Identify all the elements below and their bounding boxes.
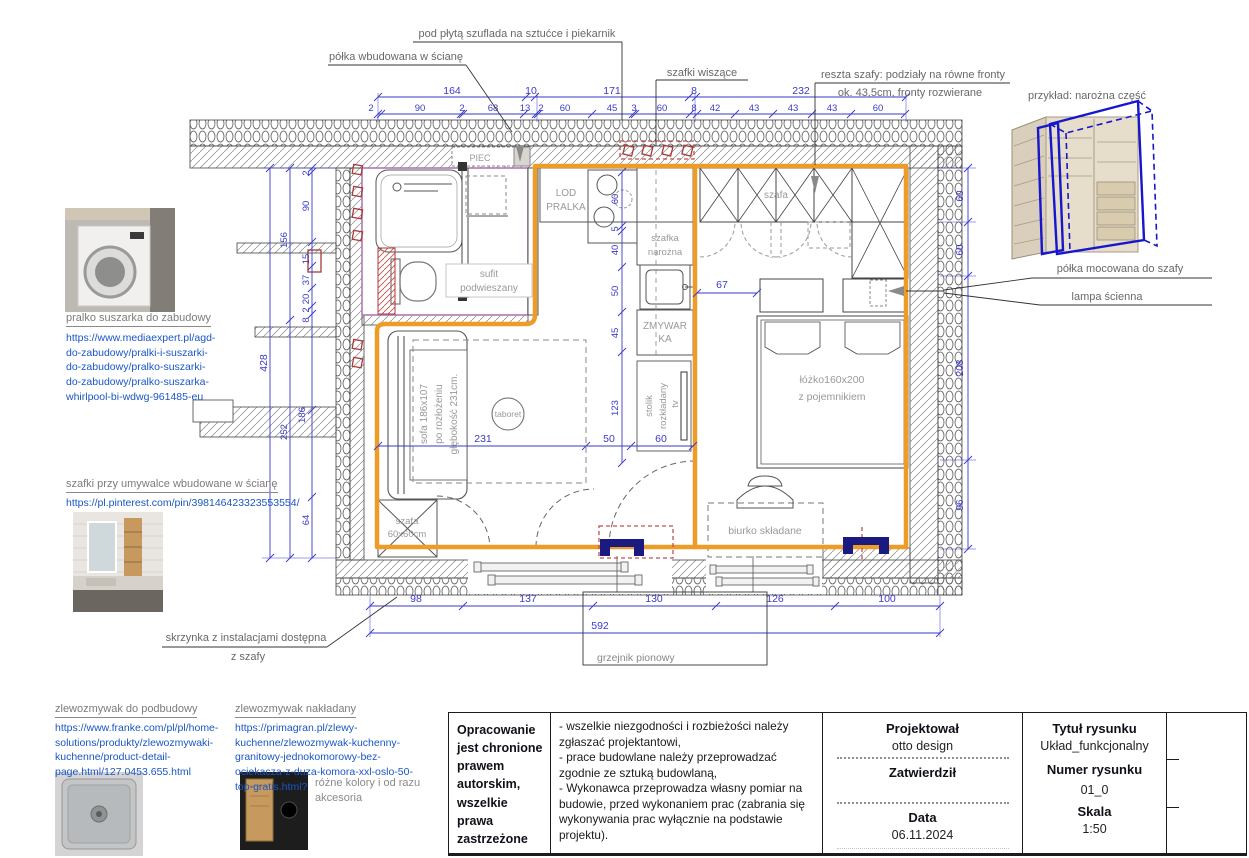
dishwasher-label: KA xyxy=(658,334,672,345)
desk-chair xyxy=(737,476,793,508)
svg-text:szafa: szafa xyxy=(396,516,419,527)
callout-wardrobe-fronts: ok. 43,5cm, fronty rozwierane xyxy=(838,87,982,99)
designed-label: Projektował xyxy=(823,721,1022,736)
door-arcs xyxy=(437,461,695,549)
svg-text:8: 8 xyxy=(691,103,696,114)
svg-text:186: 186 xyxy=(297,407,308,423)
note-line: - wszelkie niezgodności i rozbieżości na… xyxy=(559,719,814,750)
washer-photo xyxy=(65,208,175,312)
desk-label: biurko składane xyxy=(728,525,802,537)
wardrobe-label: szafa xyxy=(764,190,788,201)
ref-washer: pralko suszarka do zabudowy https://www.… xyxy=(66,308,218,404)
fridge-washer-label: LOD xyxy=(556,188,577,199)
tv-label: tv xyxy=(670,400,681,408)
svg-text:90: 90 xyxy=(301,201,312,212)
lamp-arrow-icon xyxy=(888,286,904,296)
ref-sink-mirror: szafki przy umywalce wbudowane w ścianę … xyxy=(66,474,336,511)
svg-text:13: 13 xyxy=(520,103,531,114)
bedroom: szafa łóżko160x200 z pojemnikiem biurko … xyxy=(700,168,908,557)
svg-text:592: 592 xyxy=(591,620,609,632)
svg-text:stolik: stolik xyxy=(644,395,655,417)
svg-text:60: 60 xyxy=(657,103,668,114)
wall-lamp-symbol xyxy=(870,280,886,306)
piec-label: PIEC xyxy=(469,153,491,163)
callout-hanging-cabinets: szafki wiszące xyxy=(667,67,737,79)
svg-text:64: 64 xyxy=(301,515,312,526)
svg-text:42: 42 xyxy=(710,103,721,114)
living-area: sofa 186x107 po rozłożeniu głębokość 231… xyxy=(378,331,695,557)
svg-text:90: 90 xyxy=(415,103,426,114)
approved-label: Zatwierdził xyxy=(823,765,1022,780)
dishwasher-label: ZMYWAR xyxy=(643,321,687,332)
bed: łóżko160x200 z pojemnikiem xyxy=(757,279,908,468)
svg-text:20: 20 xyxy=(301,294,312,305)
svg-text:60: 60 xyxy=(873,103,884,114)
ref-sink-mirror-title: szafki przy umywalce wbudowane w ścianę xyxy=(66,478,278,493)
svg-text:156: 156 xyxy=(279,232,290,248)
svg-text:60: 60 xyxy=(610,194,621,205)
svg-text:45: 45 xyxy=(607,103,618,114)
svg-text:15: 15 xyxy=(301,254,312,265)
svg-text:60x60cm: 60x60cm xyxy=(388,529,427,540)
ref-sink-under: zlewozmywak do podbudowy https://www.fra… xyxy=(55,699,225,780)
ref-sink-under-title: zlewozmywak do podbudowy xyxy=(55,703,197,718)
svg-text:98: 98 xyxy=(410,593,422,605)
svg-text:taboret: taboret xyxy=(495,409,522,419)
svg-text:252: 252 xyxy=(279,424,290,440)
svg-text:40: 40 xyxy=(610,245,621,256)
title-block-empty xyxy=(1167,713,1246,853)
ref-washer-title: pralko suszarka do zabudowy xyxy=(66,312,211,327)
callout-shelf-wall: półka wbudowana w ścianę xyxy=(329,51,463,63)
radiator-callout: grzejnik pionowy xyxy=(583,592,767,665)
callout-utility-box: z szafy xyxy=(231,651,266,663)
callout-utility-box: skrzynka z instalacjami dostępna xyxy=(166,632,328,644)
bed-label: z pojemnikiem xyxy=(798,391,865,403)
kitchen-sink xyxy=(640,265,694,309)
steel-sink-photo xyxy=(55,772,143,856)
bathroom-photo xyxy=(73,512,163,612)
corner-cabinet-label: szafka xyxy=(651,233,679,244)
svg-text:123: 123 xyxy=(610,400,621,416)
svg-text:8: 8 xyxy=(301,317,312,322)
svg-text:60: 60 xyxy=(955,244,966,256)
svg-text:43: 43 xyxy=(827,103,838,114)
ref-sink-under-link[interactable]: https://www.franke.com/pl/pl/home-soluti… xyxy=(55,721,225,780)
svg-text:sufit: sufit xyxy=(480,269,499,280)
svg-text:2: 2 xyxy=(368,103,373,114)
svg-text:232: 232 xyxy=(792,85,810,97)
designed-value: otto design xyxy=(823,739,1022,753)
svg-text:2: 2 xyxy=(459,103,464,114)
svg-text:60: 60 xyxy=(955,190,966,202)
date-label: Data xyxy=(823,810,1022,825)
svg-text:10: 10 xyxy=(525,85,537,97)
svg-text:137: 137 xyxy=(519,593,537,605)
svg-text:208: 208 xyxy=(955,359,966,376)
bathroom: sufit podwieszany xyxy=(362,162,538,315)
callout-wardrobe-fronts: reszta szafy: podziały na równe fronty xyxy=(821,69,1006,81)
svg-text:231: 231 xyxy=(474,433,492,445)
svg-text:37: 37 xyxy=(301,275,312,286)
title-block-notes: - wszelkie niezgodności i rozbieżości na… xyxy=(551,713,823,853)
note-line: - prace budowlane należy przeprowadzać z… xyxy=(559,750,814,781)
ref-sink-top-note: różne kolory i od razu akcesoria xyxy=(315,776,430,806)
leader-arrow-icon xyxy=(811,176,819,193)
svg-text:2: 2 xyxy=(301,170,312,175)
svg-text:8: 8 xyxy=(691,85,697,97)
wardrobe-example-image xyxy=(1012,101,1157,259)
sofa-label: sofa 186x107 xyxy=(419,384,430,444)
svg-text:171: 171 xyxy=(603,85,621,97)
title-block-signatures: Projektował otto design Zatwierdził Data… xyxy=(823,713,1023,853)
svg-text:45: 45 xyxy=(610,328,621,339)
ref-washer-link[interactable]: https://www.mediaexpert.pl/agd-do-zabudo… xyxy=(66,331,218,404)
scale-value: 1:50 xyxy=(1023,822,1166,836)
svg-text:130: 130 xyxy=(645,593,663,605)
corner-cabinet-label: narożna xyxy=(648,247,683,258)
svg-text:50: 50 xyxy=(610,286,621,297)
callout-drawer: pod płytą szuflada na sztućce i piekarni… xyxy=(419,28,616,40)
title-block: Opracowanie jest chronione prawem autors… xyxy=(448,712,1247,856)
door-jamb xyxy=(458,162,467,171)
svg-text:96: 96 xyxy=(955,499,966,511)
svg-text:428: 428 xyxy=(258,354,270,372)
wardrobe: szafa xyxy=(700,168,908,278)
title-block-meta: Tytuł rysunku Układ_funkcjonalny Numer r… xyxy=(1023,713,1167,853)
ref-sink-top-title: zlewozmywak nakładany xyxy=(235,703,356,718)
bed-label: łóżko160x200 xyxy=(800,374,865,386)
svg-text:2: 2 xyxy=(301,307,312,312)
stool: taboret xyxy=(492,398,524,430)
svg-text:2: 2 xyxy=(538,103,543,114)
riser-shaft xyxy=(378,248,395,314)
note-line: - Wykonawca przeprowadza własny pomiar n… xyxy=(559,781,814,843)
svg-text:grzejnik pionowy: grzejnik pionowy xyxy=(597,652,675,664)
callout-shelf-wardrobe: półka mocowana do szafy xyxy=(1057,263,1184,275)
ref-sink-mirror-link[interactable]: https://pl.pinterest.com/pin/39814642332… xyxy=(66,496,336,511)
svg-text:3: 3 xyxy=(631,103,636,114)
suspended-ceiling-label: sufit podwieszany xyxy=(446,264,532,297)
sofa-label: po rozłożeniu xyxy=(434,384,445,443)
svg-text:43: 43 xyxy=(788,103,799,114)
svg-text:5: 5 xyxy=(610,226,621,231)
drawing-number-label: Numer rysunku xyxy=(1023,762,1166,777)
svg-text:50: 50 xyxy=(603,433,615,445)
svg-text:43: 43 xyxy=(749,103,760,114)
svg-text:60: 60 xyxy=(655,433,667,445)
callout-corner-example: przykład: narożna część xyxy=(1028,90,1146,102)
bottom-openings xyxy=(468,556,822,594)
title-block-copyright: Opracowanie jest chronione prawem autors… xyxy=(449,713,551,853)
scale-label: Skala xyxy=(1023,804,1166,819)
sofa-label: głębokość 231cm. xyxy=(449,374,460,455)
svg-text:126: 126 xyxy=(766,593,784,605)
svg-text:164: 164 xyxy=(443,85,461,97)
fridge-washer-label: PRALKA xyxy=(546,202,586,213)
svg-text:rozkładany: rozkładany xyxy=(658,383,669,429)
callout-wall-lamp: lampa ścienna xyxy=(1072,291,1144,303)
svg-text:67: 67 xyxy=(716,279,728,291)
drawing-number-value: 01_0 xyxy=(1023,783,1166,797)
date-value: 06.11.2024 xyxy=(823,828,1022,842)
drawing-title-value: Układ_funkcjonalny xyxy=(1023,739,1166,753)
svg-text:podwieszany: podwieszany xyxy=(460,283,518,294)
svg-text:60: 60 xyxy=(560,103,571,114)
svg-text:100: 100 xyxy=(878,593,896,605)
floorplan-sheet: PIEC xyxy=(0,0,1249,858)
drawing-title-label: Tytuł rysunku xyxy=(1023,721,1166,736)
